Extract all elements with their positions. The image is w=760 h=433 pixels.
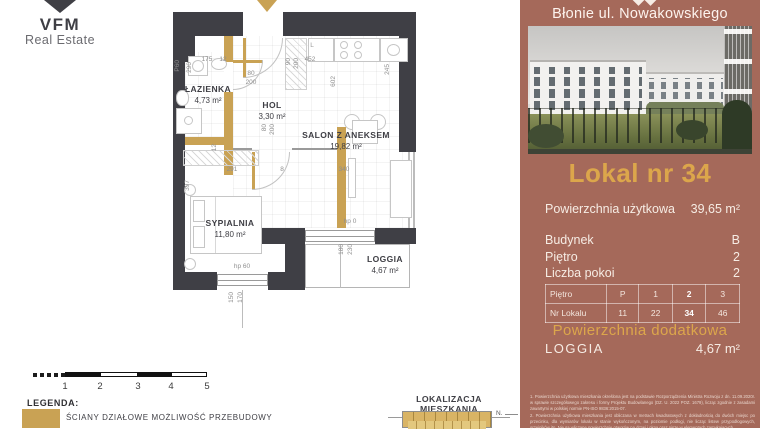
dim-label: 230 [347,244,354,255]
dim-label: 12 [216,56,230,63]
room-label-loggia: LOGGIA [355,254,415,264]
dim-label: 452 [296,56,324,63]
footnotes: 1. Powierzchnia użytkowa mieszkania okre… [530,394,755,433]
spec-label: Powierzchnia użytkowa [545,202,675,216]
floor-unit-table: Piętro P 1 2 3 Nr Lokalu 11 22 34 46 [545,284,740,323]
additional-area-title: Powierzchnia dodatkowa [520,322,760,339]
dim-label: 80 [240,70,262,77]
scale-tick: 1 [60,381,70,392]
legend-title: LEGENDA: [27,398,79,408]
dim-label: 150 [228,292,235,303]
burner [340,51,348,59]
info-panel: Błonie ul. Nowakowskiego Lokal nr 34 Pow… [520,0,760,428]
table-cell: 46 [706,304,740,323]
photo-bush [676,120,708,140]
table-header-unit: Nr Lokalu [546,304,607,323]
building-photo [528,26,752,154]
sofa [390,160,412,218]
spec-value: 2 [733,250,740,264]
fridge-label: L [305,42,319,49]
room-label-bathroom: ŁAZIENKA [178,84,238,94]
scale-tick: 4 [166,381,176,392]
room-area-bedroom: 11,80 m² [198,230,262,239]
legend-partition-swatch [22,409,60,428]
spec-row: Piętro 2 [545,250,740,264]
dim-label: 200 [269,124,276,135]
room-label-living: SALON Z ANEKSEM [296,130,396,140]
dim-label: 291 [218,166,246,173]
spec-value: B [732,233,740,247]
spec-label: Budynek [545,233,594,247]
burner [354,51,362,59]
logo-subtitle: Real Estate [15,33,105,47]
north-indicator: N. [496,410,503,417]
dim-label: 245 [384,64,391,75]
table-row: Piętro P 1 2 3 [546,285,740,304]
partition-wall [185,137,233,145]
burner [354,41,362,49]
room-label-hall: HOL [242,100,302,110]
dim-label: hp 0 [336,218,364,225]
table-cell: 22 [639,304,673,323]
dim-label: 8 [276,166,288,173]
logo-arrow-icon [44,0,76,13]
legend-item-label: ŚCIANY DZIAŁOWE MOŻLIWOŚĆ PRZEBUDOWY [66,413,272,422]
room-area-hall: 3,30 m² [242,112,302,121]
window-line [413,152,415,228]
project-name: Błonie ul. Nowakowskiego [520,6,760,22]
room-area-living: 19,82 m² [296,142,396,151]
additional-area-row: LOGGIA 4,67 m² [545,341,740,356]
additional-area-value: 4,67 m² [696,341,740,356]
kitchen-sink [387,44,400,56]
dim-label: hp 60 [224,263,260,270]
wall [283,12,416,36]
shower-drain [184,116,193,125]
tv-stand [348,158,356,198]
dim-label: 397 [184,180,191,191]
location-minimap [402,411,492,428]
photo-tree [722,100,752,154]
scale-tick: 3 [133,381,143,392]
table-cell: P [607,285,639,304]
additional-area-label: LOGGIA [545,341,604,356]
dim-label: 340 [330,166,358,173]
table-cell: 1 [639,285,673,304]
table-cell-current: 2 [672,285,706,304]
dim-label: 80 [261,124,268,131]
entrance-marker-icon [257,0,277,12]
spec-label: Liczba pokoi [545,266,615,280]
dim-label: 12 [211,144,218,151]
dim-label: 180 [338,244,345,255]
room-area-bathroom: 4,73 m² [178,96,238,105]
dim-label: 170 [237,292,244,303]
spec-row: Liczba pokoi 2 [545,266,740,280]
dim-label: 290 [186,62,193,73]
wall [173,272,217,290]
dim-label: 90 [285,58,292,65]
bedroom-window [217,274,268,286]
spec-value: 2 [733,266,740,280]
table-cell-current: 34 [672,304,706,323]
table-cell: 3 [706,285,740,304]
dim-label: 200 [240,79,262,86]
spec-label: Piętro [545,250,578,264]
nightstand [184,258,196,270]
room-area-loggia: 4,67 m² [355,266,415,275]
spec-value: 39,65 m² [691,202,740,216]
table-header-floor: Piętro [546,285,607,304]
scale-tick: 5 [202,381,212,392]
loggia-window-door [305,230,375,242]
footnote: 2. Powierzchnia użytkowa mieszkania jest… [530,413,755,431]
photo-bush [528,124,564,148]
table-row: Nr Lokalu 11 22 34 46 [546,304,740,323]
spec-row: Powierzchnia użytkowa 39,65 m² [545,202,740,216]
wall [173,12,243,36]
wall [375,228,416,244]
scale-tick: 2 [95,381,105,392]
photo-bottom-band [528,149,752,154]
spec-row: Budynek B [545,233,740,247]
footnote: 1. Powierzchnia użytkowa mieszkania okre… [530,394,755,412]
wardrobe [183,150,259,166]
table-cell: 11 [607,304,639,323]
north-line [505,414,518,415]
dim-label: 602 [330,76,337,87]
logo-name: VFM [20,15,100,35]
dim-label: 200 [293,58,300,69]
wall [285,228,305,290]
dim-label: P60 [174,60,181,72]
unit-title: Lokal nr 34 [520,158,760,189]
room-label-bedroom: SYPIALNIA [198,218,262,228]
burner [340,41,348,49]
